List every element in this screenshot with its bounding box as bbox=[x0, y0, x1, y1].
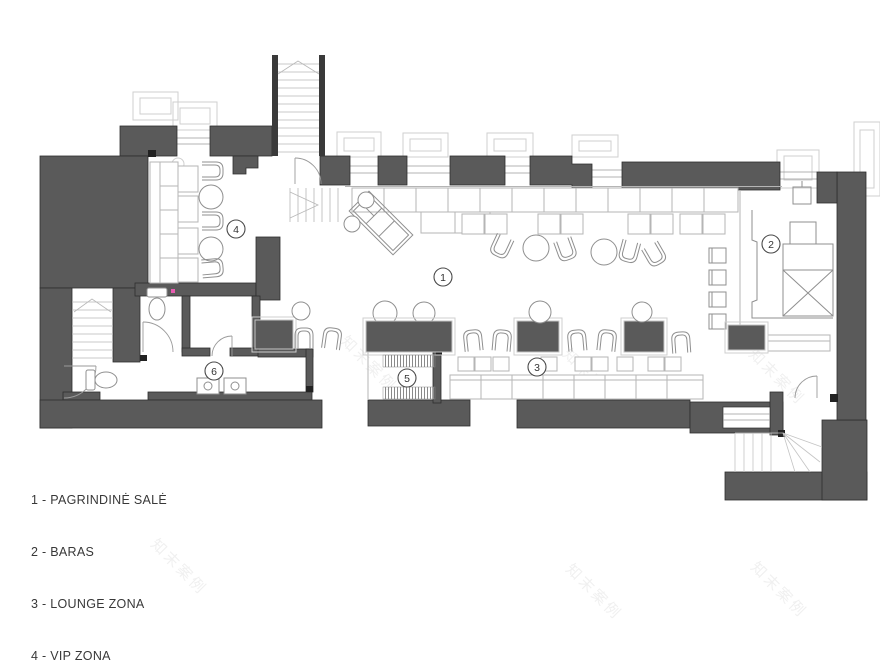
vip-furniture bbox=[150, 158, 224, 283]
room-marker-1: 1 bbox=[434, 268, 452, 286]
lounge-banquette bbox=[450, 375, 703, 399]
hall-round-table bbox=[523, 235, 549, 261]
hall-chair bbox=[618, 239, 641, 264]
hall-round-table bbox=[591, 239, 617, 265]
room-marker-5: 5 bbox=[398, 369, 416, 387]
vip-sofa-seat bbox=[160, 162, 178, 283]
room-marker-6: 6 bbox=[205, 362, 223, 380]
floor-plan-page: 知末案例 知末案例 知末案例 知末案例 知末案例 知末案例 bbox=[0, 0, 880, 660]
door-main-stair bbox=[295, 158, 321, 184]
washbasin bbox=[197, 378, 219, 394]
wall-vip-top bbox=[210, 126, 272, 156]
wall-left-mass bbox=[40, 156, 148, 288]
room-marker-3: 3 bbox=[528, 358, 546, 376]
lounge-table-dark bbox=[624, 321, 664, 352]
legend: 1 - PAGRINDINĖ SALĖ 2 - BARAS 3 - LOUNGE… bbox=[31, 457, 167, 660]
wall-bottom-left bbox=[40, 400, 322, 428]
bar-stools bbox=[709, 248, 726, 329]
bar-end-block bbox=[728, 325, 765, 350]
back-bar bbox=[783, 244, 833, 316]
hall-chair bbox=[642, 241, 668, 268]
stair-left bbox=[72, 299, 113, 358]
wall-right-lower bbox=[822, 420, 867, 500]
svg-text:3: 3 bbox=[534, 362, 540, 374]
lounge-round-table bbox=[632, 302, 652, 322]
stair-interior-step bbox=[290, 188, 338, 222]
room-marker-4: 4 bbox=[227, 220, 245, 238]
stair-rail-right bbox=[319, 55, 325, 156]
piano-stool bbox=[344, 216, 360, 232]
wall-corner-tr bbox=[817, 172, 837, 203]
bottom-window bbox=[723, 407, 770, 428]
washbasin bbox=[224, 378, 246, 394]
hall-chair bbox=[554, 237, 578, 263]
lounge-round-table bbox=[529, 301, 551, 323]
watermark-text: 知末案例 bbox=[562, 560, 626, 624]
legend-item: 3 - LOUNGE ZONA bbox=[31, 596, 167, 613]
wall-pier-5 bbox=[622, 162, 780, 190]
toilet-tank bbox=[86, 370, 95, 390]
legend-item: 4 - VIP ZONA bbox=[31, 648, 167, 660]
toilet-bowl bbox=[95, 372, 117, 388]
bar-counter bbox=[752, 210, 833, 318]
vip-table bbox=[199, 237, 223, 261]
wall-storage-left bbox=[182, 296, 190, 352]
wall-stair-side bbox=[113, 288, 140, 362]
wall-right-main bbox=[837, 172, 866, 420]
lounge-chair bbox=[671, 331, 690, 353]
wall-vip-corner bbox=[233, 156, 258, 174]
bar-sink bbox=[793, 187, 811, 204]
vip-armchair bbox=[202, 162, 223, 180]
hall-chair bbox=[489, 233, 514, 260]
svg-text:1: 1 bbox=[440, 272, 446, 284]
stair-main-top bbox=[278, 61, 319, 152]
vip-sofa-back bbox=[150, 162, 160, 283]
door-storage bbox=[212, 336, 232, 356]
vip-armchair bbox=[202, 212, 223, 230]
wall-stub bbox=[256, 237, 280, 300]
cloakroom-counter bbox=[366, 321, 452, 352]
lounge-chair bbox=[463, 329, 483, 352]
legend-item: 2 - BARAS bbox=[31, 544, 167, 561]
legend-item: 1 - PAGRINDINĖ SALĖ bbox=[31, 492, 167, 509]
wall-pier-4 bbox=[530, 156, 592, 190]
room-marker-2: 2 bbox=[762, 235, 780, 253]
toilet-bowl bbox=[149, 298, 165, 320]
piano-stool bbox=[358, 192, 374, 208]
svg-text:6: 6 bbox=[211, 366, 217, 378]
stair-bottom-right bbox=[735, 433, 822, 472]
wall-bottom-mid-a bbox=[368, 400, 470, 426]
wall-pier-2 bbox=[378, 156, 407, 185]
svg-text:4: 4 bbox=[233, 224, 239, 236]
wall-stair-jamb bbox=[770, 392, 783, 435]
wall-corridor-top bbox=[258, 349, 313, 357]
coat-rack bbox=[383, 387, 435, 399]
wall-bottom-mid-b bbox=[517, 400, 690, 428]
vip-table bbox=[199, 185, 223, 209]
lounge-round-table bbox=[292, 302, 310, 320]
wall-pier-1 bbox=[320, 156, 350, 185]
wall-pier-3 bbox=[450, 156, 505, 185]
wall-storage-bottom-a bbox=[182, 348, 210, 356]
stair-rail-left bbox=[272, 55, 278, 156]
watermark-text: 知末案例 bbox=[747, 558, 811, 622]
toilet-tank bbox=[147, 288, 167, 297]
lounge-table-dark bbox=[517, 321, 559, 352]
lounge-table-dark bbox=[255, 320, 293, 349]
svg-text:2: 2 bbox=[768, 239, 774, 251]
wall-corridor-jamb bbox=[306, 349, 313, 392]
wall-table-band bbox=[352, 188, 738, 212]
svg-text:5: 5 bbox=[404, 373, 410, 385]
wc-fixtures bbox=[86, 288, 246, 394]
plan-marker-pink bbox=[171, 289, 175, 293]
lounge-chair bbox=[597, 329, 617, 352]
door-wc-upper bbox=[143, 322, 173, 352]
coat-rack bbox=[383, 355, 435, 367]
lounge-chair bbox=[492, 329, 512, 351]
lounge-chair bbox=[295, 328, 313, 349]
side-bench bbox=[768, 335, 830, 351]
